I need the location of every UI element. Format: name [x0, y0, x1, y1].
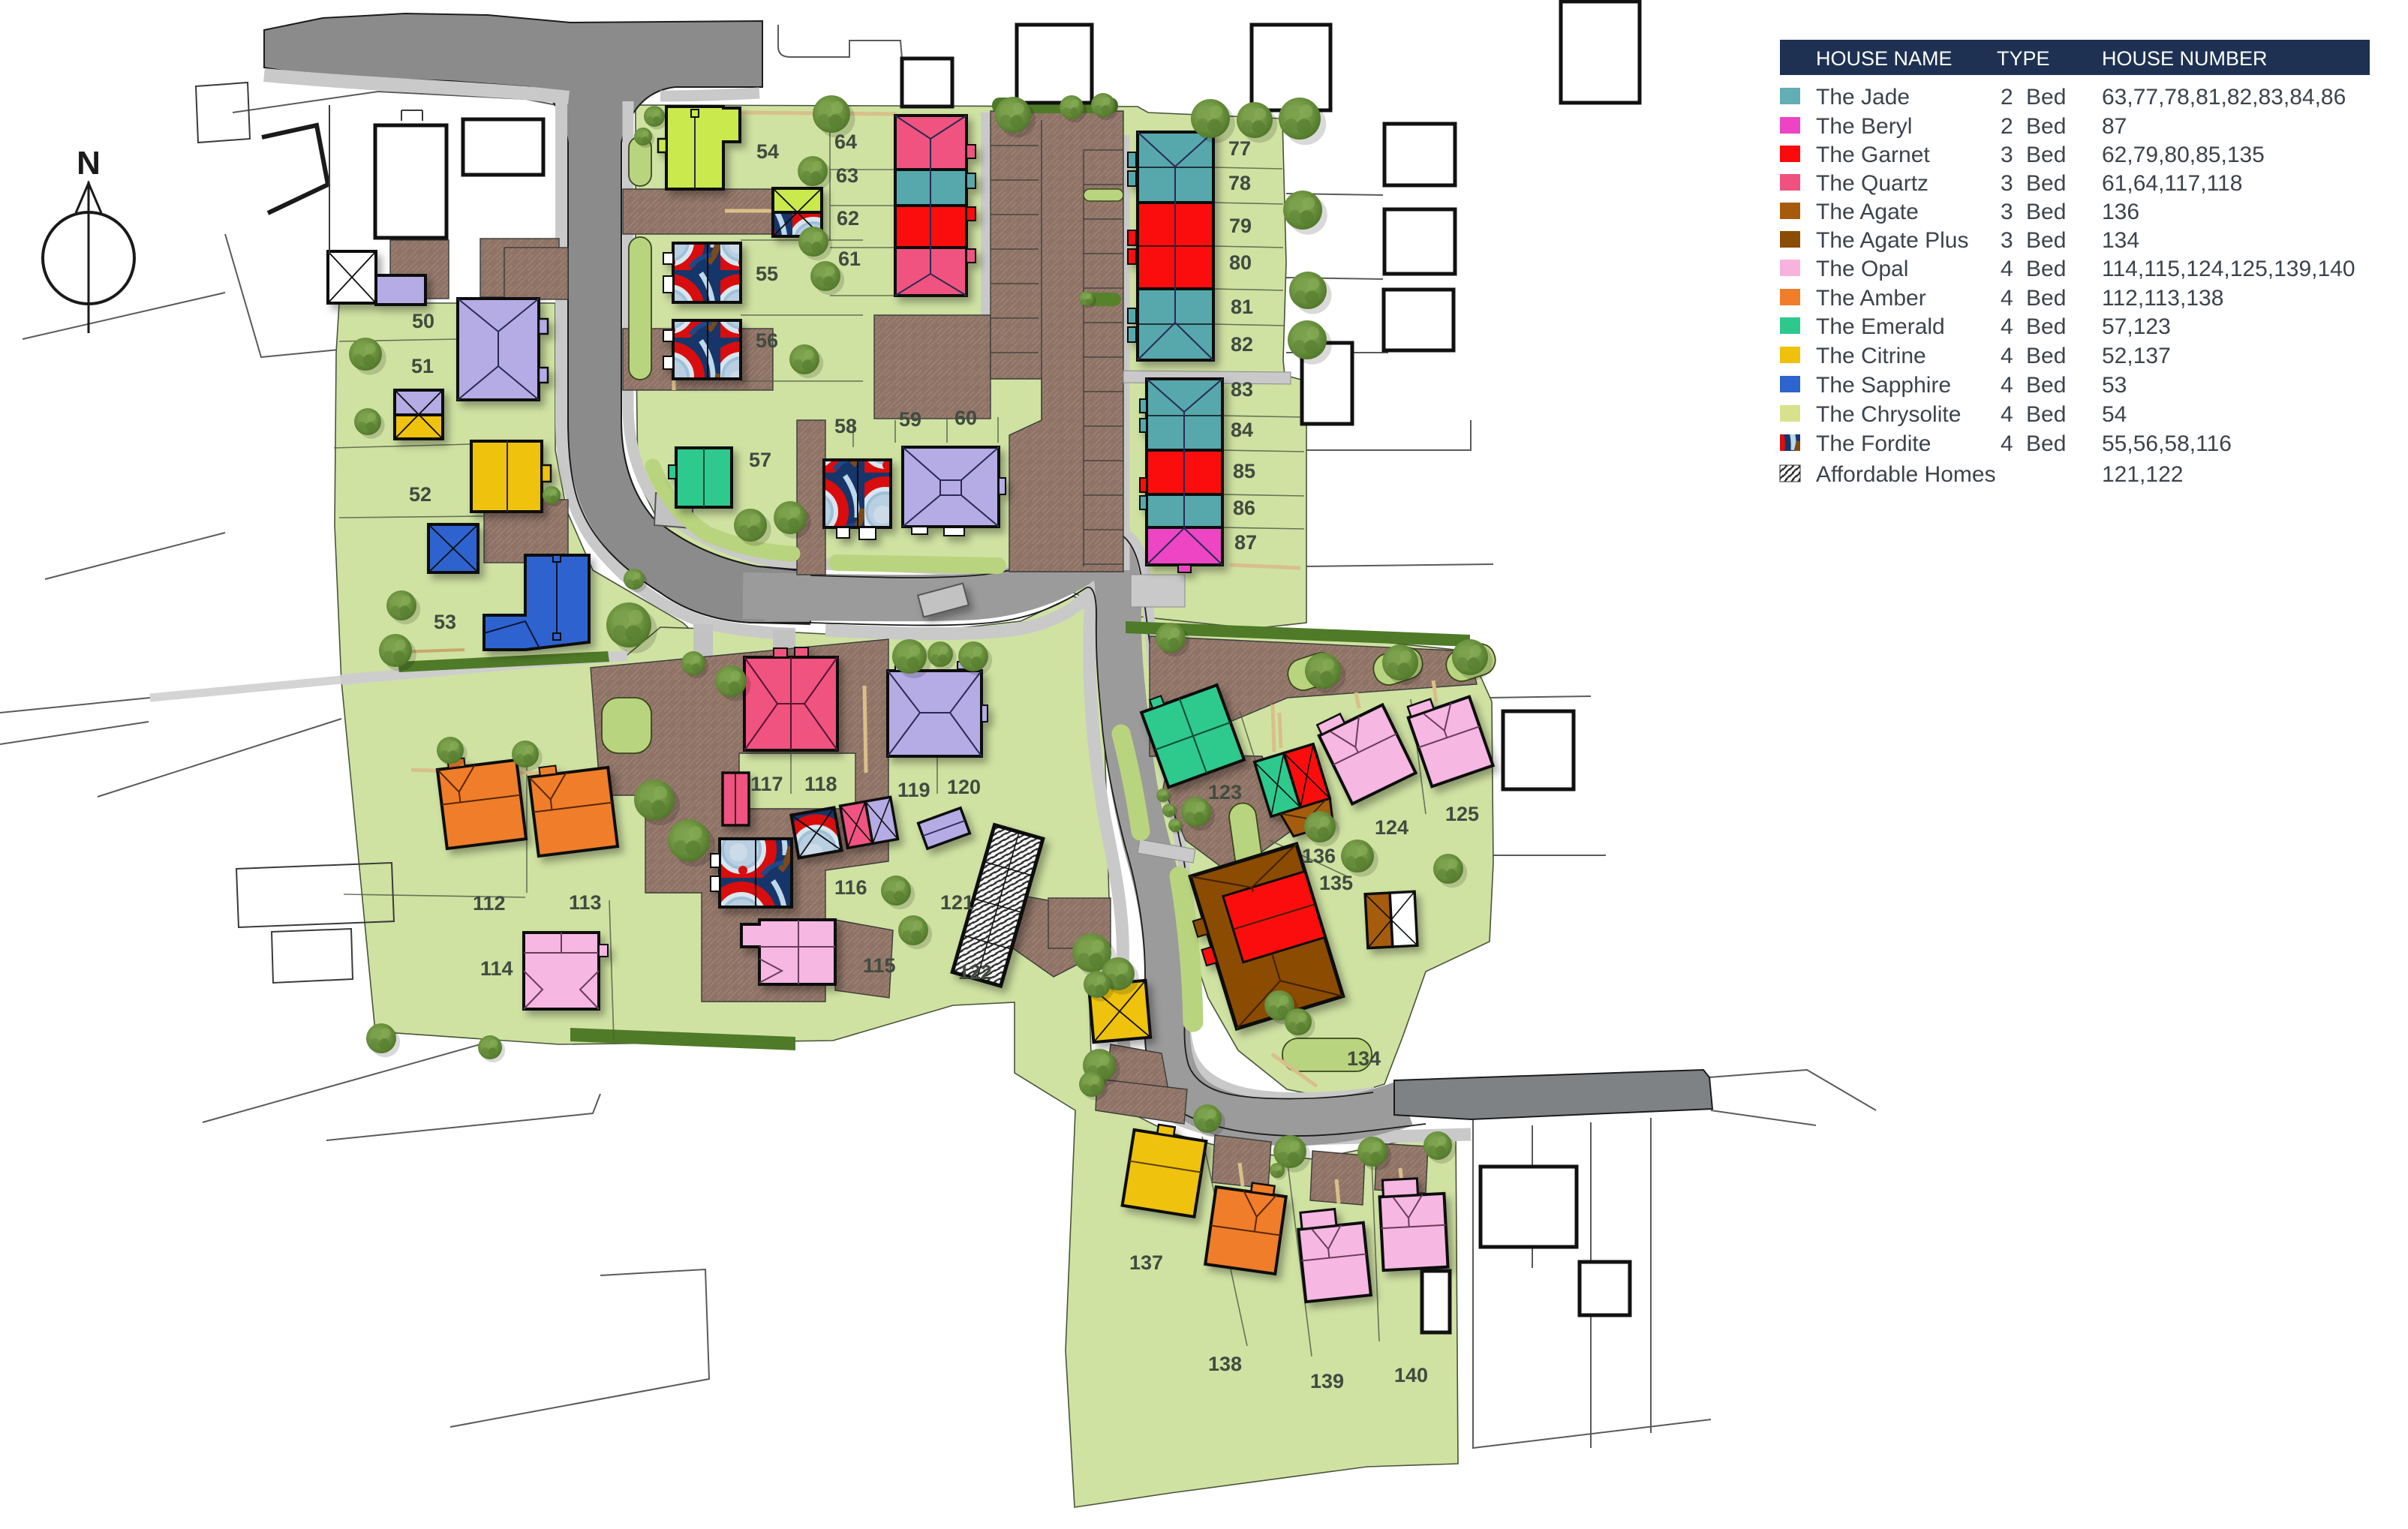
svg-text:112: 112 [473, 892, 506, 915]
svg-text:61,64,117,118: 61,64,117,118 [2102, 171, 2242, 196]
svg-text:135: 135 [1319, 872, 1353, 894]
svg-text:4: 4 [2001, 286, 2013, 311]
svg-text:119: 119 [897, 779, 930, 801]
svg-text:Bed: Bed [2026, 257, 2066, 281]
svg-text:The Agate: The Agate [1816, 200, 1919, 224]
svg-text:121,122: 121,122 [2102, 462, 2183, 487]
svg-text:The Citrine: The Citrine [1816, 344, 1926, 368]
svg-text:58: 58 [834, 415, 857, 437]
svg-text:59: 59 [899, 408, 921, 431]
svg-text:134: 134 [1347, 1047, 1381, 1070]
svg-text:The Garnet: The Garnet [1816, 143, 1930, 167]
svg-text:136: 136 [1302, 845, 1336, 867]
svg-text:52,137: 52,137 [2102, 344, 2171, 368]
svg-text:3: 3 [2001, 228, 2013, 253]
svg-text:64: 64 [834, 131, 857, 153]
svg-text:137: 137 [1129, 1251, 1163, 1274]
svg-text:Bed: Bed [2026, 431, 2066, 456]
svg-text:Bed: Bed [2026, 85, 2066, 110]
svg-text:134: 134 [2102, 228, 2139, 253]
svg-text:TYPE: TYPE [1997, 47, 2050, 70]
svg-text:62,79,80,85,135: 62,79,80,85,135 [2102, 143, 2265, 167]
svg-text:The Emerald: The Emerald [1816, 314, 1945, 339]
svg-text:57: 57 [749, 449, 771, 471]
svg-text:115: 115 [863, 954, 896, 977]
svg-text:81: 81 [1231, 296, 1253, 318]
svg-text:83: 83 [1231, 378, 1253, 401]
svg-text:The Amber: The Amber [1816, 286, 1926, 311]
svg-text:78: 78 [1228, 172, 1251, 194]
svg-text:The Fordite: The Fordite [1816, 431, 1931, 456]
svg-text:2: 2 [2001, 85, 2013, 110]
svg-text:116: 116 [834, 876, 867, 899]
svg-text:85: 85 [1233, 460, 1255, 482]
svg-text:114,115,124,125,139,140: 114,115,124,125,139,140 [2102, 257, 2355, 281]
svg-text:63,77,78,81,82,83,84,86: 63,77,78,81,82,83,84,86 [2102, 85, 2346, 110]
svg-text:117: 117 [750, 773, 783, 795]
svg-text:60: 60 [954, 407, 977, 429]
svg-text:Affordable Homes: Affordable Homes [1816, 462, 1996, 487]
svg-text:114: 114 [480, 957, 513, 980]
svg-text:53: 53 [2102, 373, 2127, 398]
svg-text:121: 121 [940, 891, 974, 914]
svg-text:54: 54 [756, 140, 779, 163]
svg-text:The Agate Plus: The Agate Plus [1816, 228, 1968, 253]
svg-text:122: 122 [958, 961, 992, 984]
svg-text:The Opal: The Opal [1816, 257, 1908, 281]
svg-text:113: 113 [569, 891, 602, 914]
svg-text:136: 136 [2102, 200, 2139, 224]
svg-text:120: 120 [947, 776, 981, 798]
svg-text:87: 87 [1234, 531, 1257, 554]
svg-text:The Chrysolite: The Chrysolite [1816, 402, 1961, 427]
svg-text:N: N [77, 145, 101, 182]
svg-text:The Jade: The Jade [1816, 85, 1910, 110]
svg-text:55,56,58,116: 55,56,58,116 [2102, 431, 2232, 456]
svg-text:56: 56 [756, 329, 778, 352]
svg-text:55: 55 [756, 263, 778, 285]
svg-text:50: 50 [412, 310, 434, 332]
svg-text:4: 4 [2001, 314, 2013, 339]
svg-text:Bed: Bed [2026, 171, 2066, 196]
svg-text:140: 140 [1394, 1364, 1428, 1386]
svg-text:4: 4 [2001, 344, 2013, 368]
svg-text:HOUSE NAME: HOUSE NAME [1816, 47, 1953, 70]
svg-text:Bed: Bed [2026, 114, 2066, 139]
svg-text:Bed: Bed [2026, 402, 2066, 427]
svg-text:52: 52 [409, 483, 431, 506]
svg-text:The Sapphire: The Sapphire [1816, 373, 1951, 398]
svg-text:84: 84 [1231, 419, 1253, 441]
svg-text:HOUSE NUMBER: HOUSE NUMBER [2102, 47, 2268, 70]
svg-text:79: 79 [1229, 215, 1252, 237]
svg-text:124: 124 [1375, 816, 1408, 839]
svg-text:63: 63 [836, 164, 858, 187]
svg-text:4: 4 [2001, 257, 2013, 281]
svg-text:80: 80 [1229, 251, 1252, 274]
svg-text:3: 3 [2001, 143, 2013, 167]
svg-text:3: 3 [2001, 200, 2013, 224]
svg-text:4: 4 [2001, 373, 2013, 398]
svg-text:Bed: Bed [2026, 286, 2066, 311]
svg-text:123: 123 [1208, 781, 1242, 804]
svg-text:2: 2 [2001, 114, 2013, 139]
svg-text:138: 138 [1208, 1353, 1242, 1375]
svg-text:Bed: Bed [2026, 228, 2066, 253]
svg-text:77: 77 [1228, 137, 1251, 160]
svg-text:Bed: Bed [2026, 344, 2066, 368]
svg-text:86: 86 [1233, 497, 1255, 519]
svg-text:4: 4 [2001, 402, 2013, 427]
svg-text:61: 61 [838, 248, 861, 270]
svg-text:112,113,138: 112,113,138 [2102, 286, 2223, 311]
svg-text:125: 125 [1445, 803, 1479, 825]
svg-text:4: 4 [2001, 431, 2013, 456]
svg-text:139: 139 [1310, 1370, 1344, 1392]
svg-text:51: 51 [411, 355, 434, 377]
svg-text:Bed: Bed [2026, 200, 2066, 224]
svg-text:118: 118 [804, 773, 837, 795]
svg-text:Bed: Bed [2026, 314, 2066, 339]
svg-text:The Quartz: The Quartz [1816, 171, 1929, 196]
svg-text:53: 53 [434, 611, 456, 633]
svg-text:57,123: 57,123 [2102, 314, 2171, 339]
svg-text:The Beryl: The Beryl [1816, 114, 1912, 139]
svg-text:62: 62 [837, 207, 859, 230]
svg-text:Bed: Bed [2026, 143, 2066, 167]
svg-text:54: 54 [2102, 402, 2127, 427]
svg-text:87: 87 [2102, 114, 2127, 139]
svg-text:82: 82 [1231, 333, 1253, 356]
svg-text:Bed: Bed [2026, 373, 2066, 398]
svg-text:3: 3 [2001, 171, 2013, 196]
